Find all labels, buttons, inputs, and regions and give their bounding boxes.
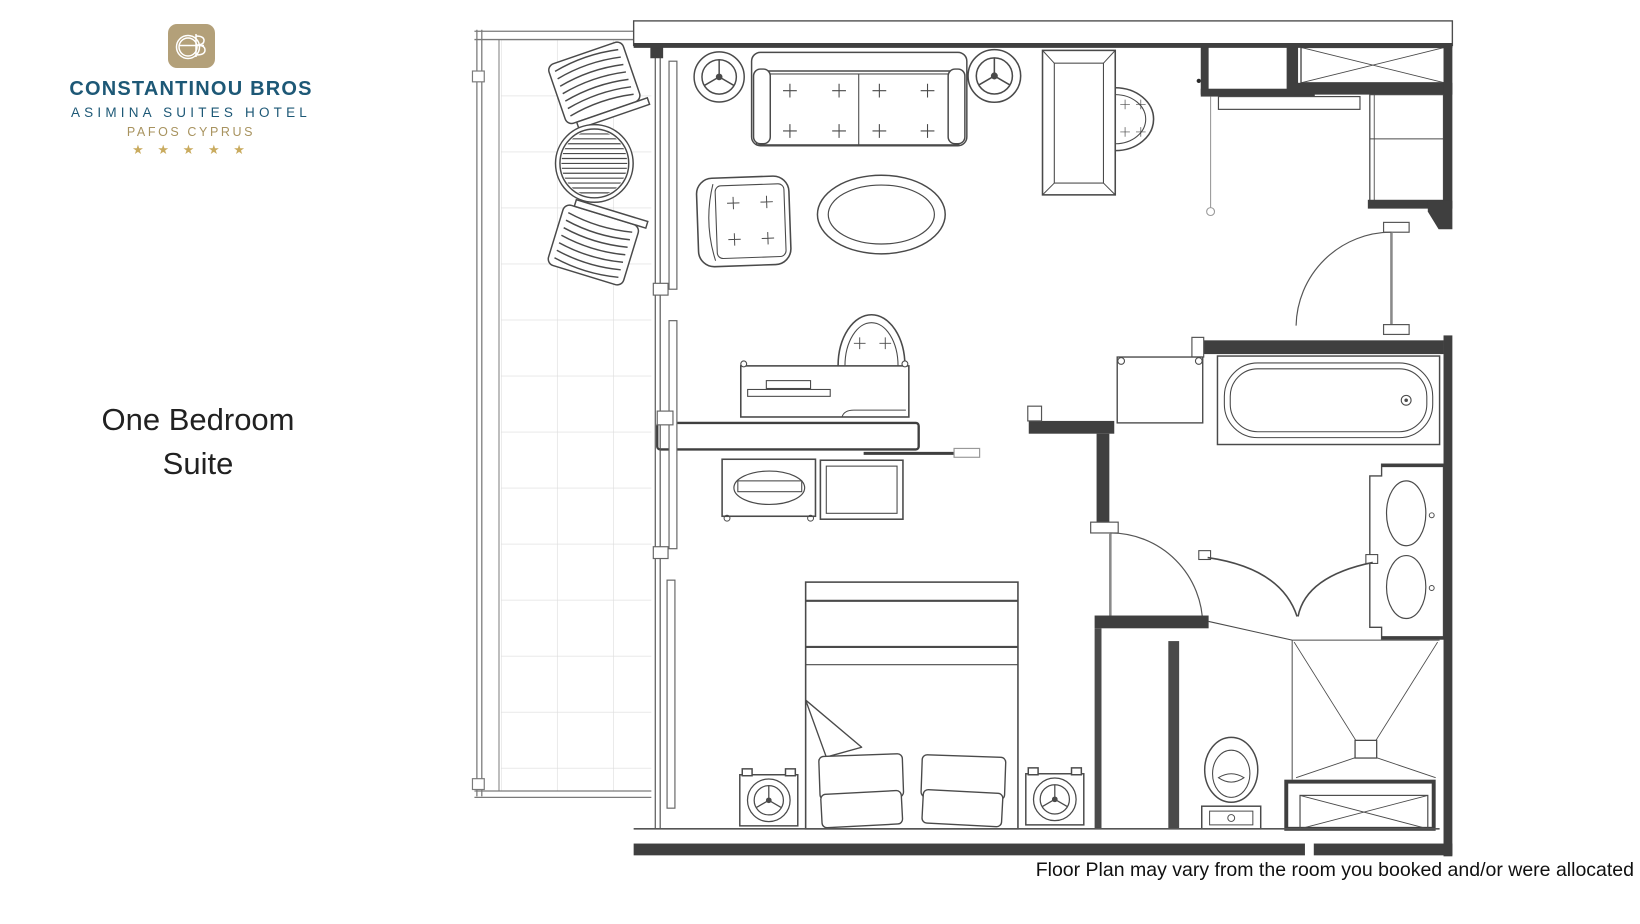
ceiling-speaker-icon bbox=[968, 50, 1021, 103]
hotel-monogram-icon bbox=[171, 27, 211, 65]
page-title: One Bedroom Suite bbox=[38, 398, 358, 486]
tv-partition bbox=[657, 423, 979, 457]
entrance-door bbox=[1296, 222, 1409, 334]
round-slat-table bbox=[556, 125, 634, 203]
desk bbox=[741, 315, 909, 417]
page: CONSTANTINOU BROS ASIMINA SUITES HOTEL P… bbox=[0, 0, 1640, 924]
floor-plan-drawing bbox=[450, 15, 1465, 875]
disclaimer-text: Floor Plan may vary from the room you bo… bbox=[1036, 859, 1634, 882]
hotel-logo bbox=[168, 24, 215, 68]
bathroom-door bbox=[1110, 533, 1202, 625]
wall-closet bbox=[1368, 95, 1444, 209]
nightstand-lamp bbox=[1026, 768, 1084, 825]
ceiling-speaker-icon bbox=[694, 52, 744, 102]
sofa bbox=[752, 52, 967, 145]
page-title-line1: One Bedroom bbox=[38, 398, 358, 442]
page-title-line2: Suite bbox=[38, 442, 358, 486]
toilet-nook-walls bbox=[1095, 616, 1293, 829]
five-stars-icon: ★ ★ ★ ★ ★ bbox=[52, 142, 330, 158]
wardrobe-xbox bbox=[1301, 47, 1444, 82]
entrance-closet bbox=[1208, 45, 1288, 90]
toilet bbox=[1202, 737, 1261, 828]
armchair bbox=[696, 176, 791, 268]
brand-name: CONSTANTINOU BROS bbox=[52, 78, 330, 101]
brand-location: PAFOS CYPRUS bbox=[52, 125, 330, 139]
light-pull-cord bbox=[1197, 79, 1215, 216]
bathroom bbox=[1028, 337, 1444, 828]
oval-coffee-table bbox=[817, 175, 945, 254]
bedroom-furniture bbox=[740, 582, 1084, 829]
dining-table bbox=[1043, 50, 1116, 194]
nightstand-lamp bbox=[740, 769, 798, 826]
hotel-logo-block: CONSTANTINOU BROS ASIMINA SUITES HOTEL P… bbox=[52, 24, 330, 158]
double-bed bbox=[806, 582, 1018, 829]
curved-shower-door bbox=[1208, 558, 1297, 617]
dining-chair bbox=[1115, 88, 1153, 151]
luggage-rack bbox=[1117, 357, 1203, 423]
stool bbox=[820, 460, 903, 519]
dresser bbox=[722, 459, 815, 521]
brand-subtitle: ASIMINA SUITES HOTEL bbox=[52, 105, 330, 120]
shower-drain bbox=[1355, 740, 1377, 758]
storage-xbox bbox=[1286, 782, 1433, 829]
curved-shower-door bbox=[1298, 562, 1373, 616]
bathtub bbox=[1217, 356, 1439, 444]
living-room-furniture bbox=[657, 50, 1153, 522]
corridor-walls bbox=[1028, 406, 1118, 533]
entrance-area bbox=[1197, 45, 1453, 334]
hanging-rod bbox=[1218, 97, 1360, 110]
double-vanity bbox=[1370, 464, 1444, 639]
